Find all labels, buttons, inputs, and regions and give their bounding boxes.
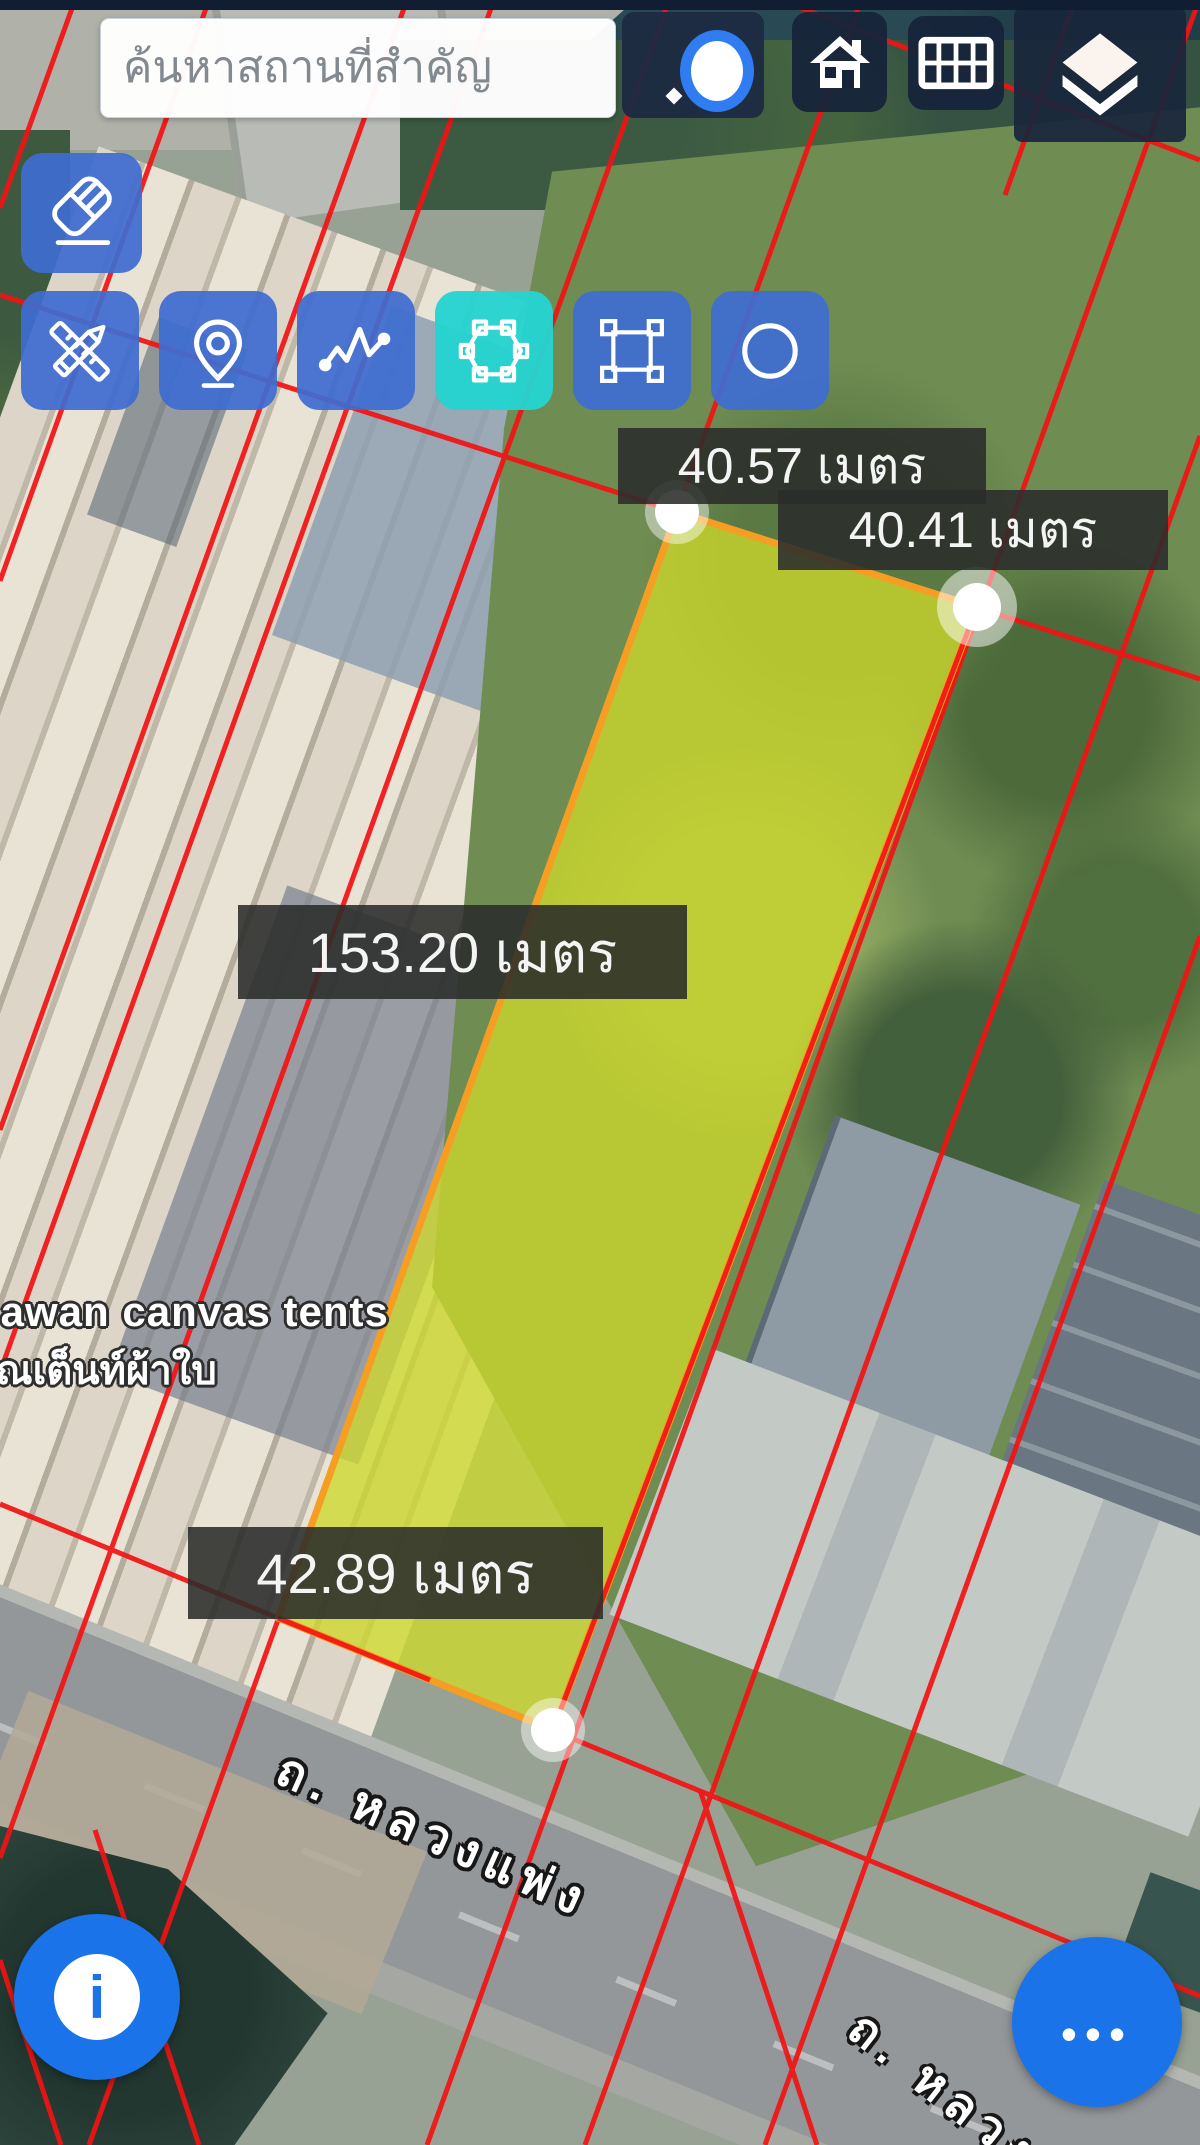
- sparkle-icon: [666, 88, 683, 105]
- more-options-fab[interactable]: •••: [1012, 1937, 1182, 2107]
- grid-button[interactable]: [908, 16, 1004, 110]
- search-input[interactable]: [100, 18, 616, 118]
- tool-rectangle-button[interactable]: [573, 291, 691, 410]
- measurement-label-bottom: 42.89 เมตร: [188, 1527, 603, 1619]
- ruler-pencil-icon: [38, 309, 122, 393]
- tool-measure-button[interactable]: [21, 291, 139, 410]
- layers-button[interactable]: [1014, 8, 1186, 142]
- tool-eraser-button[interactable]: [21, 153, 142, 273]
- tool-polygon-button[interactable]: [435, 291, 553, 410]
- magnifier-icon: [680, 30, 754, 112]
- rectangle-icon: [590, 309, 674, 393]
- tool-circle-button[interactable]: [711, 291, 829, 410]
- home-icon: [808, 30, 872, 94]
- measurement-label-top-right: 40.41 เมตร: [778, 490, 1168, 570]
- home-button[interactable]: [792, 12, 887, 112]
- tool-polyline-button[interactable]: [297, 291, 415, 410]
- status-bar: [0, 0, 1200, 10]
- info-icon: i: [54, 1954, 140, 2040]
- poi-label: hawan canvas tents: [0, 1288, 389, 1336]
- map-screen: hawan canvas tents รณเต็นท์ผ้าใบ ถ. หลวง…: [0, 0, 1200, 2145]
- layers-icon: [1048, 23, 1152, 127]
- vertex-marker[interactable]: [953, 583, 1001, 631]
- ellipsis-icon: •••: [1061, 2007, 1133, 2061]
- grid-icon: [918, 36, 994, 90]
- map-pin-icon: [176, 309, 260, 393]
- vertex-marker[interactable]: [531, 1708, 575, 1752]
- eraser-icon: [39, 170, 125, 256]
- poi-label-thai: รณเต็นท์ผ้าใบ: [0, 1338, 217, 1402]
- search-button[interactable]: [622, 12, 764, 118]
- measurement-label-left: 153.20 เมตร: [238, 905, 687, 999]
- hexagon-icon: [452, 309, 536, 393]
- polyline-icon: [314, 309, 398, 393]
- info-fab[interactable]: i: [14, 1914, 180, 2080]
- tool-marker-button[interactable]: [159, 291, 277, 410]
- circle-icon: [728, 309, 812, 393]
